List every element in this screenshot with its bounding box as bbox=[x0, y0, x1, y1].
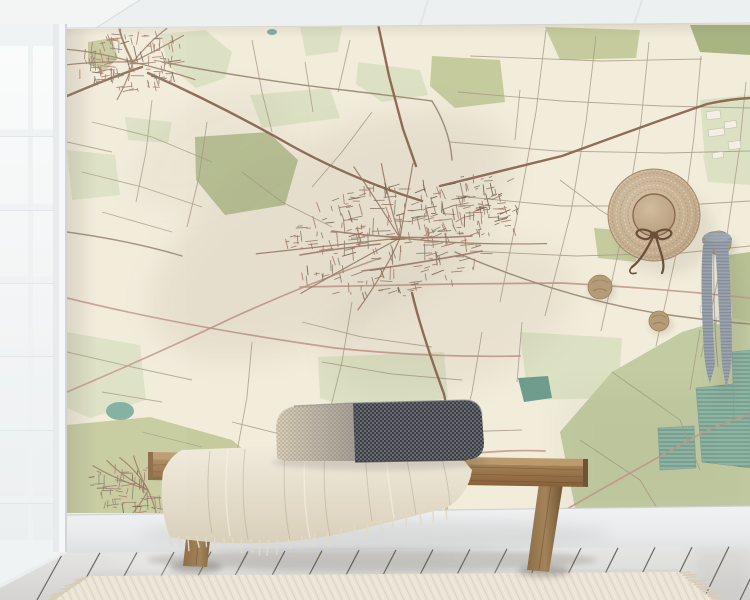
hat-bow-knot bbox=[650, 231, 657, 238]
french-window bbox=[0, 24, 67, 584]
window-panes bbox=[0, 46, 53, 540]
rug bbox=[41, 571, 725, 600]
pillow-dark-section bbox=[353, 400, 484, 462]
window-mullion bbox=[28, 46, 33, 540]
scene-canvas bbox=[0, 0, 750, 600]
pillow-ombre-overlay bbox=[276, 403, 355, 461]
coat-hook bbox=[588, 275, 612, 299]
lumbar-pillow bbox=[272, 400, 488, 470]
bench-end-cap bbox=[583, 459, 588, 487]
coat-hook bbox=[649, 311, 669, 331]
global-light-overlay bbox=[67, 24, 187, 513]
room-scene bbox=[0, 0, 750, 600]
rug-sheen bbox=[52, 572, 714, 600]
window-stile bbox=[53, 24, 59, 552]
